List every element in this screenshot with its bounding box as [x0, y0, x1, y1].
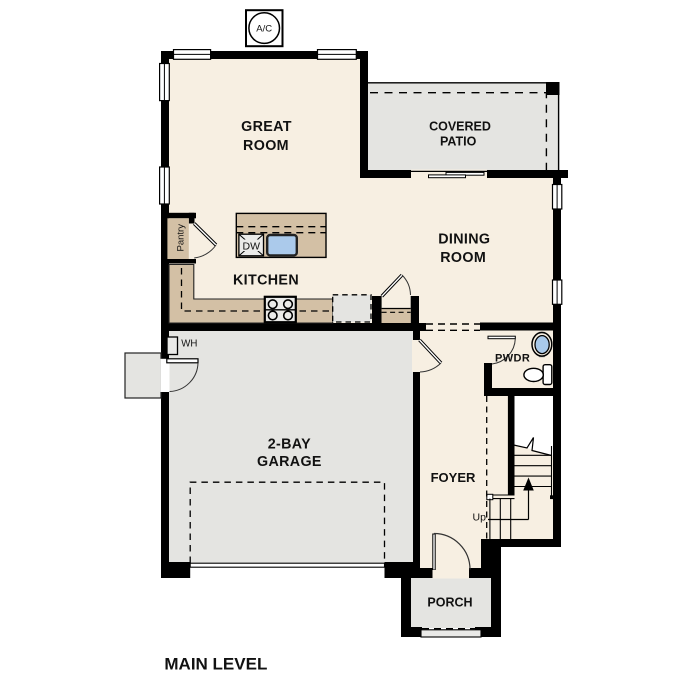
svg-text:PORCH: PORCH [427, 596, 472, 610]
svg-text:ROOM: ROOM [440, 250, 486, 266]
svg-text:A/C: A/C [256, 23, 272, 34]
svg-text:WH: WH [181, 339, 197, 350]
svg-text:DINING: DINING [438, 232, 490, 248]
svg-text:GREAT: GREAT [241, 119, 292, 135]
svg-text:GARAGE: GARAGE [257, 454, 322, 470]
svg-text:MAIN LEVEL: MAIN LEVEL [164, 655, 267, 674]
svg-text:Pantry: Pantry [176, 224, 187, 252]
svg-text:Up: Up [473, 511, 487, 523]
svg-text:COVERED: COVERED [429, 120, 491, 134]
svg-text:KITCHEN: KITCHEN [233, 272, 299, 288]
svg-text:FOYER: FOYER [431, 470, 476, 485]
svg-text:ROOM: ROOM [243, 138, 289, 154]
svg-text:PATIO: PATIO [440, 135, 477, 149]
svg-text:DW: DW [243, 241, 261, 253]
svg-text:PWDR: PWDR [495, 353, 530, 365]
svg-text:2-BAY: 2-BAY [268, 437, 311, 453]
